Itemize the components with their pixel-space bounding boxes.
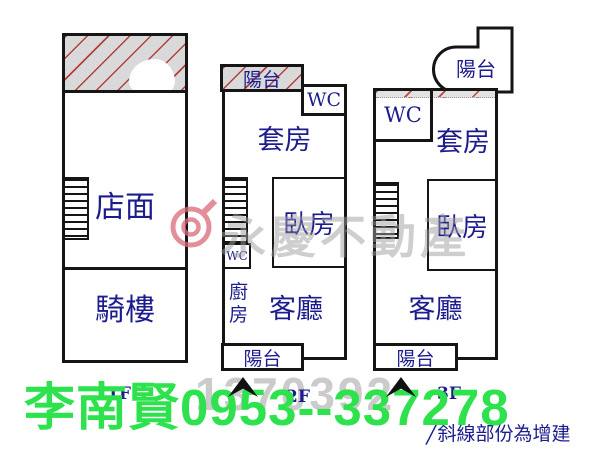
floor1-hatched-area (65, 36, 185, 93)
room-label-wc-3f: WC (384, 103, 422, 127)
floor3-wc-box: WC (376, 91, 433, 142)
agent-contact-text: 李南賢0953--337278 (24, 366, 510, 440)
floor-plan-canvas: 店面 騎樓 套房 臥房 WC 廚房 客廳 陽台 WC 陽台 陽台 WC 套房 臥… (0, 0, 600, 453)
room-label-suite-3f: 套房 (436, 120, 490, 159)
room-label-balcony-top-2f: 陽台 (243, 65, 281, 92)
room-label-arcade: 騎樓 (65, 285, 185, 329)
room-label-wc-upper: WC (307, 89, 341, 111)
room-label-kitchen: 廚房 (229, 281, 251, 327)
room-label-suite-2f: 套房 (225, 118, 344, 157)
floor2-wc-upper-box: WC (301, 84, 347, 116)
floor1-divider-wall (65, 267, 185, 270)
brand-watermark: 永慶不動產 (220, 201, 470, 267)
floor1-hatch-cutout (129, 59, 175, 93)
room-label-living-3f: 客廳 (376, 287, 495, 326)
room-label-living-2f: 客廳 (269, 287, 323, 326)
floor2-balcony-top: 陽台 (220, 64, 304, 92)
brand-logo-icon (166, 197, 218, 253)
room-label-balcony-top-3f: 陽台 (456, 53, 496, 82)
